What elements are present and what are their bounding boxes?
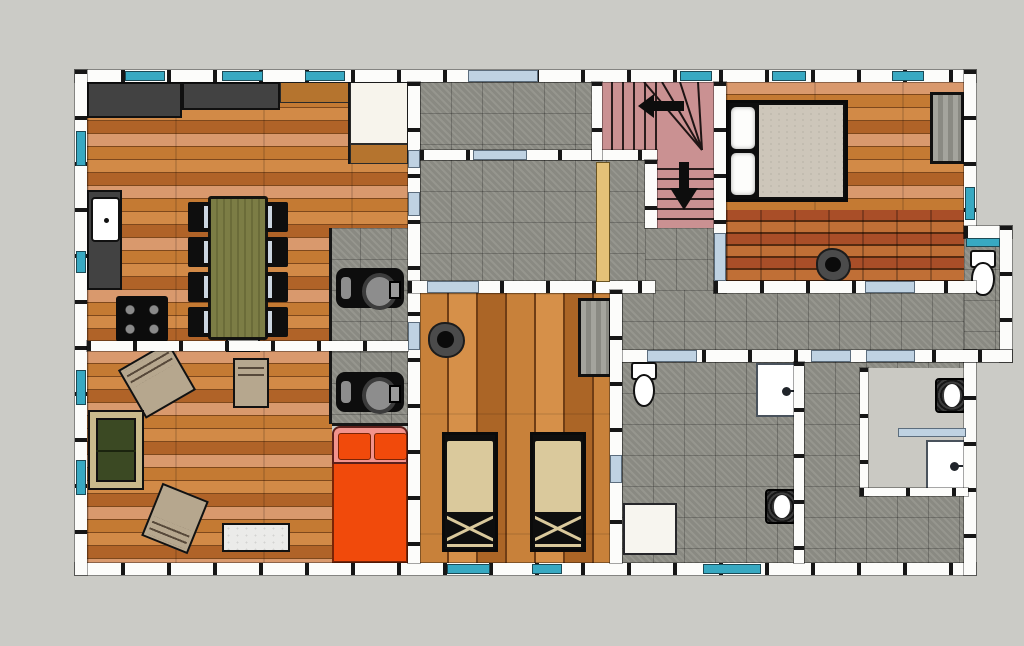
door-opening — [811, 350, 851, 362]
door-opening — [714, 233, 726, 281]
pantry-edge — [348, 82, 350, 164]
door-opening — [865, 281, 915, 293]
appliance — [336, 372, 404, 412]
orange-pillow — [338, 433, 371, 460]
window — [76, 131, 86, 166]
wall-bathright-inner-h — [860, 488, 968, 496]
wall-kitchen-living — [87, 341, 408, 351]
dining-chair — [266, 307, 288, 337]
door-opening — [427, 281, 479, 293]
window — [125, 71, 165, 81]
footboard — [447, 509, 493, 547]
floor-plan-canvas — [0, 0, 1024, 646]
window — [447, 564, 490, 574]
down-arrow — [670, 162, 698, 210]
single-bed — [442, 432, 498, 552]
glass-partition — [898, 428, 966, 437]
window — [222, 71, 263, 81]
wood-shelf — [350, 144, 408, 164]
armchair-back — [238, 362, 264, 379]
window — [76, 460, 86, 495]
counter-top-1 — [87, 82, 182, 118]
mattress — [447, 441, 493, 511]
appliance-panel — [341, 277, 351, 299]
appliance-panel — [341, 381, 351, 403]
window — [703, 564, 761, 574]
dresser — [578, 298, 612, 377]
wall-master-bottom — [714, 281, 976, 293]
toilet — [629, 362, 659, 407]
dining-chair — [266, 237, 288, 267]
door-opening — [473, 150, 527, 160]
orange-pillow — [374, 433, 407, 460]
pillow — [731, 153, 755, 195]
wall-bathright-inner-v — [860, 368, 868, 496]
dresser — [930, 92, 964, 164]
dining-table — [208, 196, 268, 340]
toilet-bowl — [633, 374, 655, 407]
utility-strip-edge — [329, 228, 332, 424]
shower-tray — [623, 503, 677, 555]
double-bed — [726, 100, 848, 202]
appliance — [336, 268, 404, 308]
appliance-box — [389, 281, 400, 299]
wall-niche-right — [1000, 226, 1012, 362]
window — [680, 71, 712, 81]
marble-rug — [222, 523, 290, 552]
dining-chair — [266, 272, 288, 302]
wood-screen — [596, 162, 610, 282]
wall-stair-left — [592, 82, 602, 160]
floor-basin — [428, 322, 465, 358]
window — [965, 187, 975, 220]
window — [305, 71, 345, 81]
entry-hall-floor — [420, 82, 592, 150]
armchair — [233, 358, 269, 408]
window — [76, 370, 86, 405]
nook-edge — [332, 423, 408, 426]
washstand — [926, 440, 966, 490]
window — [76, 251, 86, 273]
counter-top-2 — [182, 82, 280, 110]
wall-stair-landing — [645, 160, 657, 228]
counter-wood — [280, 82, 350, 103]
wall-bath-divider — [794, 362, 804, 563]
up-arrow — [638, 94, 684, 118]
door-opening — [866, 350, 915, 362]
pantry-floor — [350, 82, 408, 144]
door-opening — [610, 455, 622, 483]
wall-outer-bottom — [75, 563, 976, 575]
window — [532, 564, 562, 574]
single-bed — [530, 432, 586, 552]
door-opening — [408, 192, 420, 216]
corridor-floor — [622, 290, 1000, 352]
dining-chair — [188, 272, 210, 302]
orange-bed-body — [332, 464, 408, 563]
dining-chair — [188, 307, 210, 337]
door-opening — [408, 150, 420, 168]
door-opening — [408, 322, 420, 350]
floor-basin — [816, 248, 851, 282]
kitchen-sink — [91, 197, 120, 242]
window — [966, 238, 1000, 247]
mattress — [759, 105, 843, 197]
dining-chair — [266, 202, 288, 232]
dining-chair — [188, 202, 210, 232]
appliance-box — [389, 385, 400, 403]
wall-twinbedroom-right — [610, 290, 622, 563]
window — [772, 71, 806, 81]
window — [892, 71, 924, 81]
mattress — [535, 441, 581, 511]
footboard — [535, 509, 581, 547]
orange-bed-headboard — [332, 426, 408, 464]
washstand — [756, 363, 798, 417]
understairs-hall-floor — [645, 228, 714, 290]
door-opening — [647, 350, 697, 362]
wall-outer-right-lower — [964, 350, 976, 575]
sofa — [90, 412, 142, 488]
stove — [116, 296, 168, 342]
pillow — [731, 107, 755, 149]
dining-chair — [188, 237, 210, 267]
door-opening — [468, 70, 538, 82]
